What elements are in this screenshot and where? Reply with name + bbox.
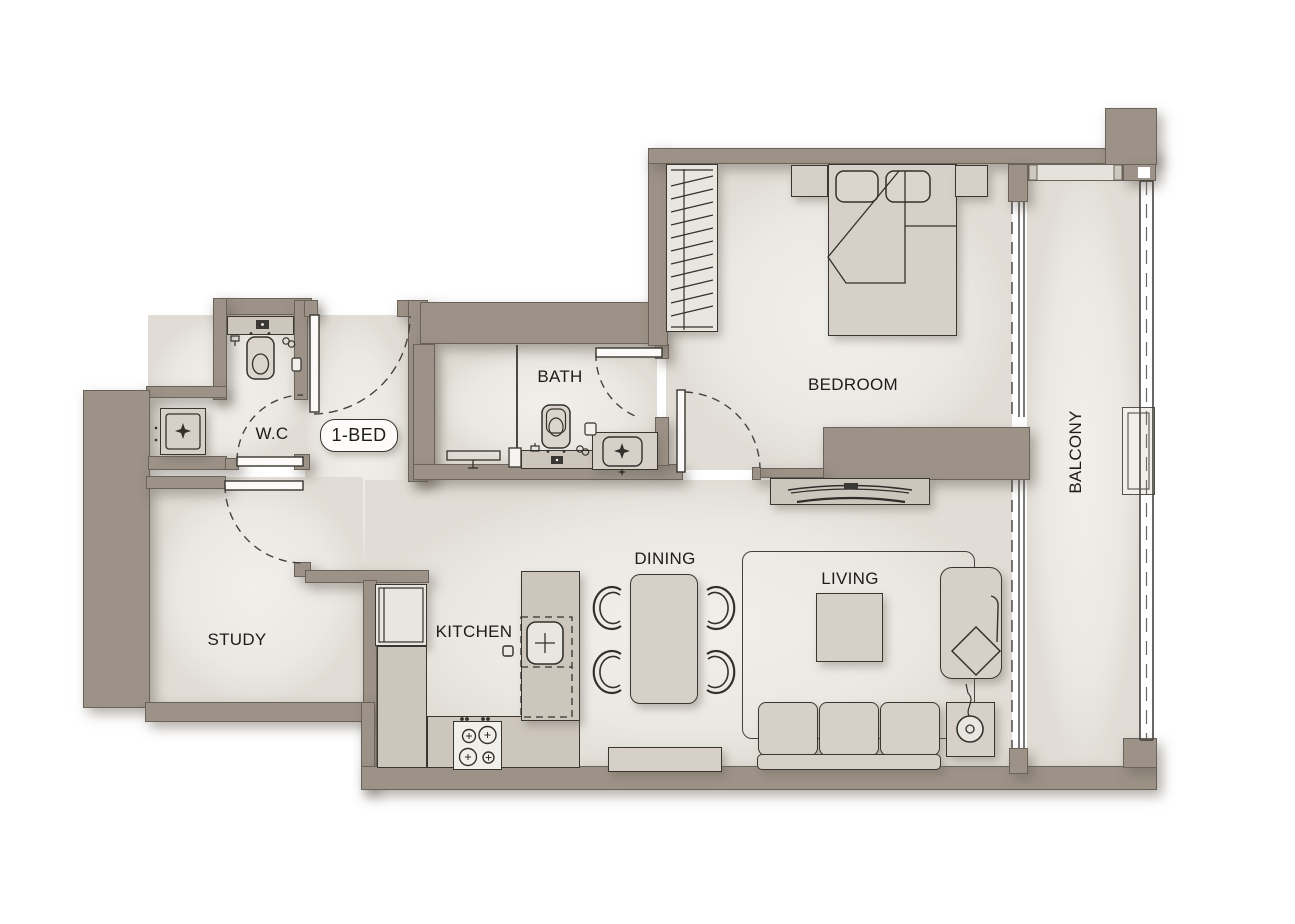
room-label-kitchen: KITCHEN [436, 622, 513, 642]
room-label-bedroom: BEDROOM [808, 375, 898, 395]
floor-study [148, 477, 363, 704]
wall-segment-bedroom-door-post [752, 467, 761, 480]
wall-segment-wc-bottom-stub [225, 458, 239, 470]
sofa-seat [758, 702, 818, 756]
fridge [375, 584, 427, 646]
balcony-sill [1028, 164, 1123, 181]
wall-segment-study-south [145, 702, 373, 722]
unit-label-badge: 1-BED [320, 419, 398, 452]
room-label-wc: W.C [255, 424, 288, 444]
wall-segment-nook-bottom [148, 456, 227, 470]
wall-segment-bedroom-block [823, 427, 1030, 480]
coffee-table [816, 593, 883, 662]
unit-label-text: 1-BED [331, 425, 386, 446]
sofa-seat [819, 702, 879, 756]
armchair [940, 567, 1002, 679]
wall-segment-bedroom-thin [760, 468, 824, 478]
room-label-living: LIVING [821, 569, 879, 589]
kitchen-counter-left [377, 646, 427, 768]
wall-segment-window-top-post [1008, 164, 1028, 202]
wall-segment-bedroom-left [648, 148, 668, 346]
wall-segment-window-bottom-post [1009, 748, 1028, 774]
sofa-seat [880, 702, 940, 756]
nightstand-left [791, 165, 828, 197]
wall-segment-left-block [83, 390, 150, 708]
stove [453, 721, 502, 770]
wall-segment-bath-left [413, 344, 435, 480]
wall-segment-study-top [146, 476, 226, 489]
balcony-planter [1122, 407, 1155, 495]
kitchen-counter-bottom [427, 716, 580, 768]
wall-segment-bath-right-top [655, 344, 669, 359]
kitchen-peninsula [521, 571, 580, 721]
tv-console-dining [608, 747, 722, 772]
wall-segment-entry-left-post [304, 300, 318, 317]
nightstand-right [955, 165, 988, 197]
sliding-window-bedroom [1012, 202, 1024, 417]
bath-washbasin-cabinet [592, 432, 658, 470]
wall-segment-south-step-right [1123, 738, 1157, 768]
bath-vanity-counter [521, 450, 593, 469]
double-bed [828, 164, 957, 336]
wall-segment-bath-top [420, 302, 660, 344]
side-table [946, 702, 995, 757]
wc-shelf [227, 316, 294, 335]
wall-segment-top-right-block [1105, 108, 1157, 165]
wall-segment-balcony-corner-post [1123, 164, 1156, 181]
wall-segment-nook-top [146, 386, 227, 398]
dining-table [630, 574, 698, 704]
room-label-study: STUDY [207, 630, 266, 650]
sliding-window-living [1012, 480, 1024, 748]
tv-console-bedroom [770, 478, 930, 505]
wc-washbasin [160, 408, 206, 455]
wall-segment-top [648, 148, 1157, 164]
sofa-base [757, 754, 941, 770]
wardrobe [666, 164, 718, 332]
room-label-bath: BATH [537, 367, 582, 387]
wall-segment-wc-door-post [294, 454, 310, 470]
wall-segment-wc-left [213, 298, 227, 400]
room-label-dining: DINING [634, 549, 695, 569]
floor-plan-canvas: W.C 1-BED BATH BEDROOM BALCONY STUDY KIT… [0, 0, 1295, 924]
room-label-balcony: BALCONY [1066, 410, 1086, 493]
